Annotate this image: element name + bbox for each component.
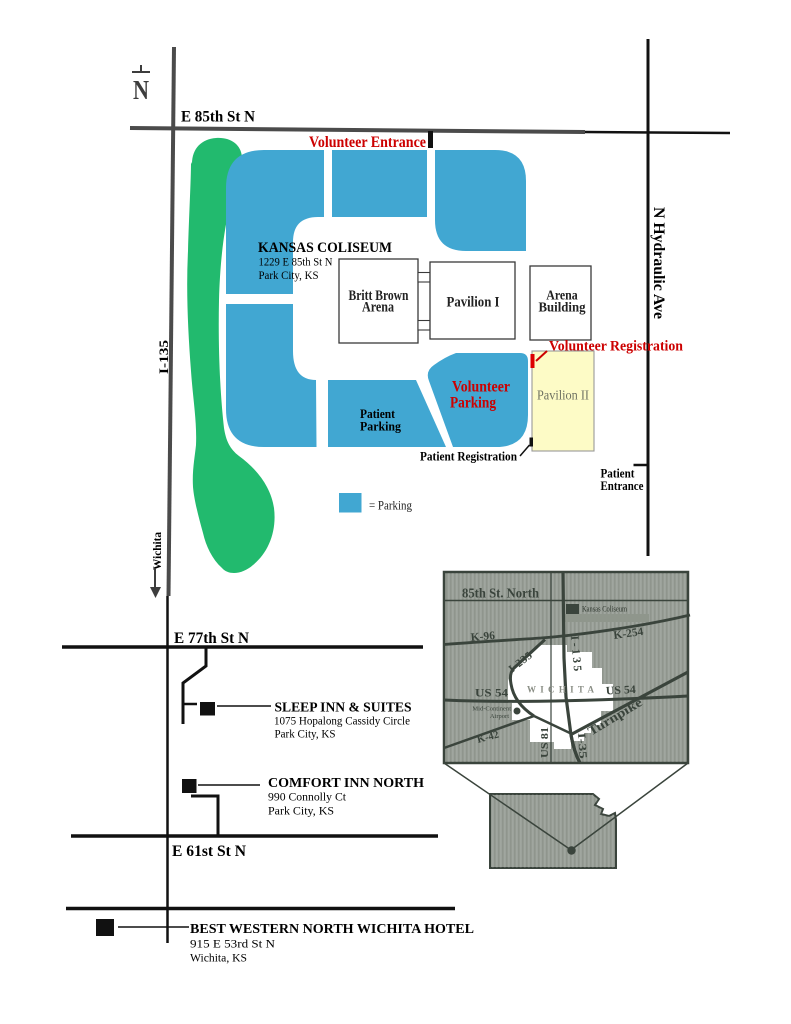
svg-text:US 54: US 54 xyxy=(475,688,508,700)
svg-text:N: N xyxy=(133,75,149,105)
svg-text:Wichita: Wichita xyxy=(150,532,164,570)
svg-text:Building: Building xyxy=(539,301,586,316)
svg-text:Wichita, KS: Wichita, KS xyxy=(190,951,247,965)
svg-text:990 Connolly Ct: 990 Connolly Ct xyxy=(268,790,347,804)
svg-text:BEST WESTERN NORTH WICHITA HOT: BEST WESTERN NORTH WICHITA HOTEL xyxy=(190,922,474,937)
svg-text:1229 E 85th St N: 1229 E 85th St N xyxy=(259,255,333,269)
svg-text:Park City, KS: Park City, KS xyxy=(259,268,319,282)
svg-text:Airport: Airport xyxy=(490,713,509,720)
svg-text:Park City, KS: Park City, KS xyxy=(275,727,336,741)
svg-text:Mid-Continent: Mid-Continent xyxy=(472,706,511,713)
svg-text:Arena: Arena xyxy=(362,300,395,316)
svg-text:Park City, KS: Park City, KS xyxy=(268,804,334,818)
svg-text:915 E 53rd St N: 915 E 53rd St N xyxy=(190,937,275,951)
svg-text:85th St. North: 85th St. North xyxy=(462,587,539,602)
svg-text:Patient Registration: Patient Registration xyxy=(420,449,518,464)
svg-text:Parking: Parking xyxy=(450,395,496,412)
svg-text:1075 Hopalong Cassidy Circle: 1075 Hopalong Cassidy Circle xyxy=(274,714,410,728)
svg-text:E 61st St N: E 61st St N xyxy=(172,843,246,860)
svg-text:Parking: Parking xyxy=(360,419,401,434)
svg-text:E 77th St N: E 77th St N xyxy=(174,630,249,647)
svg-text:I-135: I-135 xyxy=(157,340,171,374)
svg-text:Kansas Coliseum: Kansas Coliseum xyxy=(582,605,628,614)
svg-text:WICHITA: WICHITA xyxy=(527,685,599,695)
svg-text:I-35: I-35 xyxy=(575,732,589,759)
svg-text:US 81: US 81 xyxy=(539,727,551,758)
svg-text:E 85th St N: E 85th St N xyxy=(181,109,255,126)
svg-text:Pavilion II: Pavilion II xyxy=(537,388,589,403)
svg-text:N Hydraulic Ave: N Hydraulic Ave xyxy=(650,207,667,319)
svg-text:US 54: US 54 xyxy=(606,684,637,698)
svg-text:Volunteer Entrance: Volunteer Entrance xyxy=(309,134,426,151)
svg-text:K-96: K-96 xyxy=(470,630,495,644)
svg-text:= Parking: = Parking xyxy=(369,499,413,513)
svg-text:Pavilion I: Pavilion I xyxy=(447,295,500,311)
svg-text:Entrance: Entrance xyxy=(601,479,644,493)
svg-text:Volunteer: Volunteer xyxy=(452,379,510,396)
